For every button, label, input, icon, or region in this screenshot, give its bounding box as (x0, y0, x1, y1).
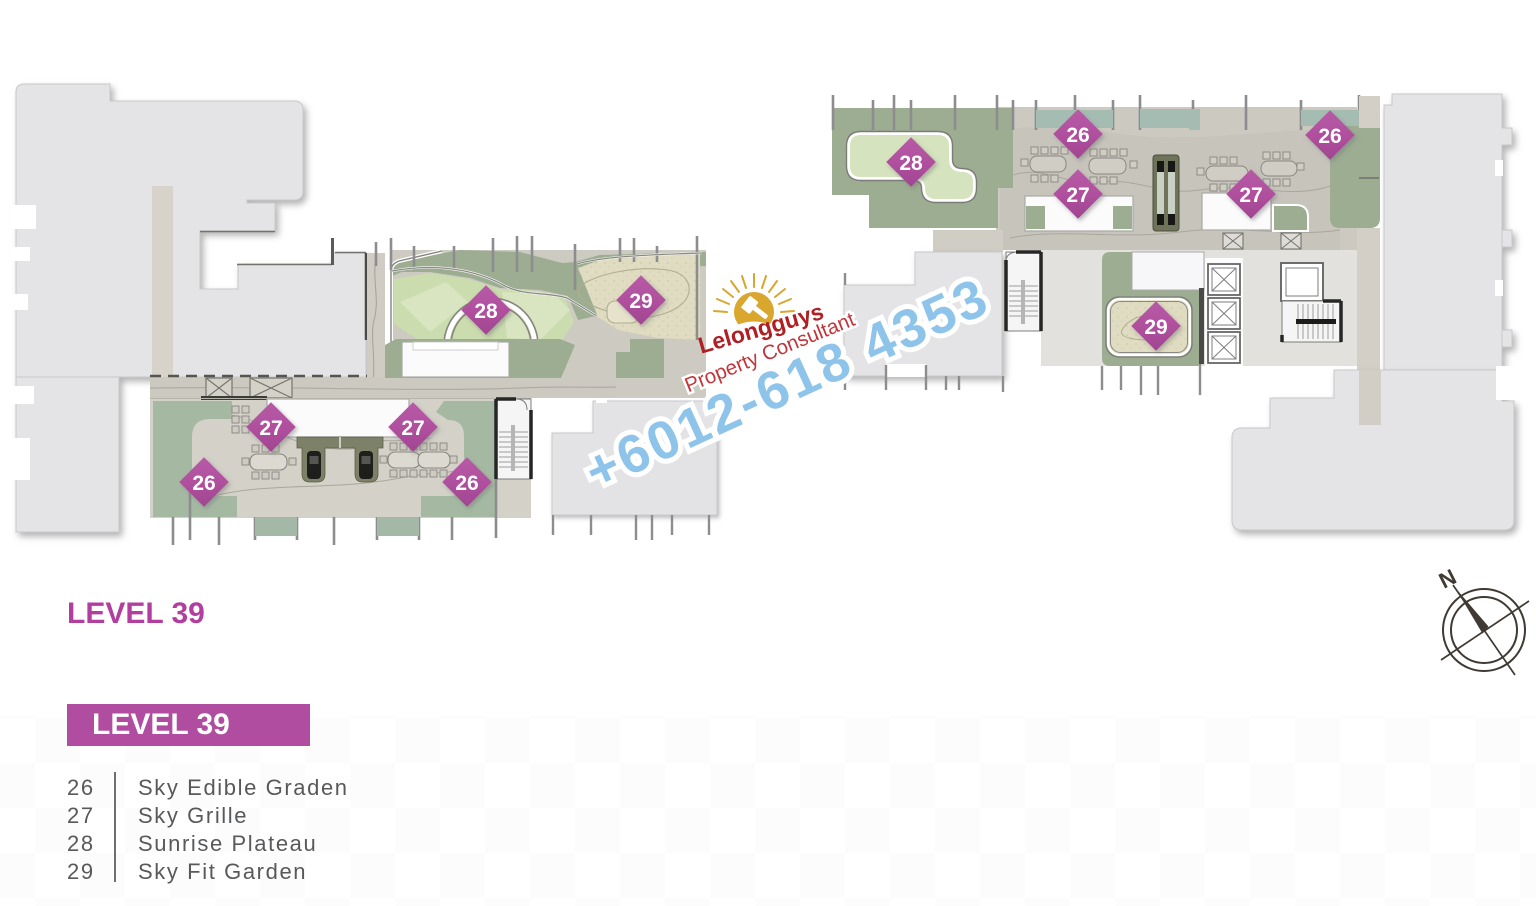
svg-text:29: 29 (1144, 316, 1167, 339)
svg-text:27: 27 (1239, 184, 1262, 207)
svg-text:26: 26 (1318, 125, 1341, 148)
svg-text:26: 26 (1066, 124, 1089, 147)
svg-text:27: 27 (1066, 184, 1089, 207)
svg-text:27: 27 (259, 417, 282, 440)
svg-text:26: 26 (455, 472, 478, 495)
svg-text:28: 28 (474, 300, 498, 323)
svg-text:29: 29 (629, 290, 652, 313)
svg-text:27: 27 (401, 417, 424, 440)
svg-text:26: 26 (192, 472, 215, 495)
svg-text:28: 28 (899, 152, 923, 175)
